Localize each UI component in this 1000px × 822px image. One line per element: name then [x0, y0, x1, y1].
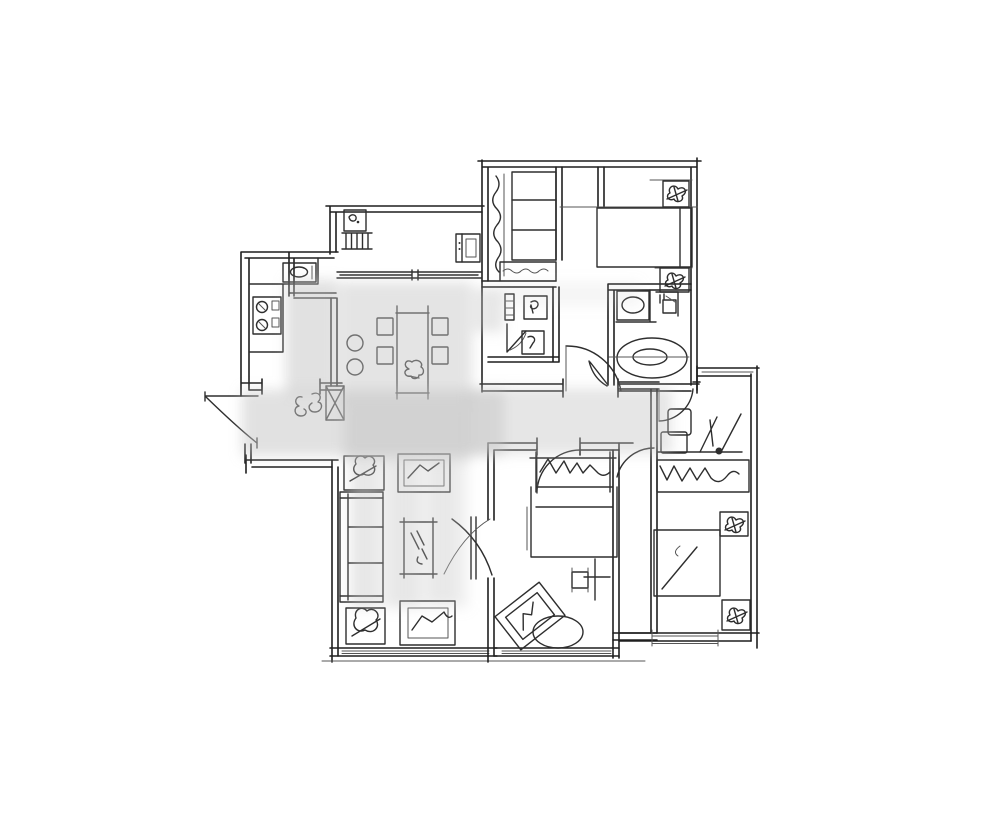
sliding-door — [337, 270, 482, 280]
floorplan-svg — [0, 0, 1000, 822]
radiator — [342, 233, 372, 249]
floorplan-canvas — [0, 0, 1000, 822]
